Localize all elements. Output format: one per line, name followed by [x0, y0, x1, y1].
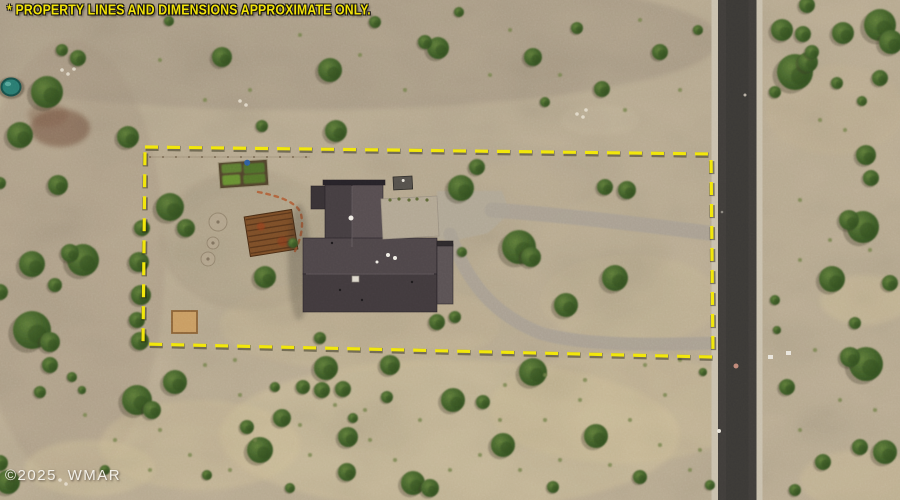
aerial-photo — [0, 0, 900, 500]
aerial-property-photo: * PROPERTY LINES AND DIMENSIONS APPROXIM… — [0, 0, 900, 500]
photo-grain — [0, 0, 900, 500]
